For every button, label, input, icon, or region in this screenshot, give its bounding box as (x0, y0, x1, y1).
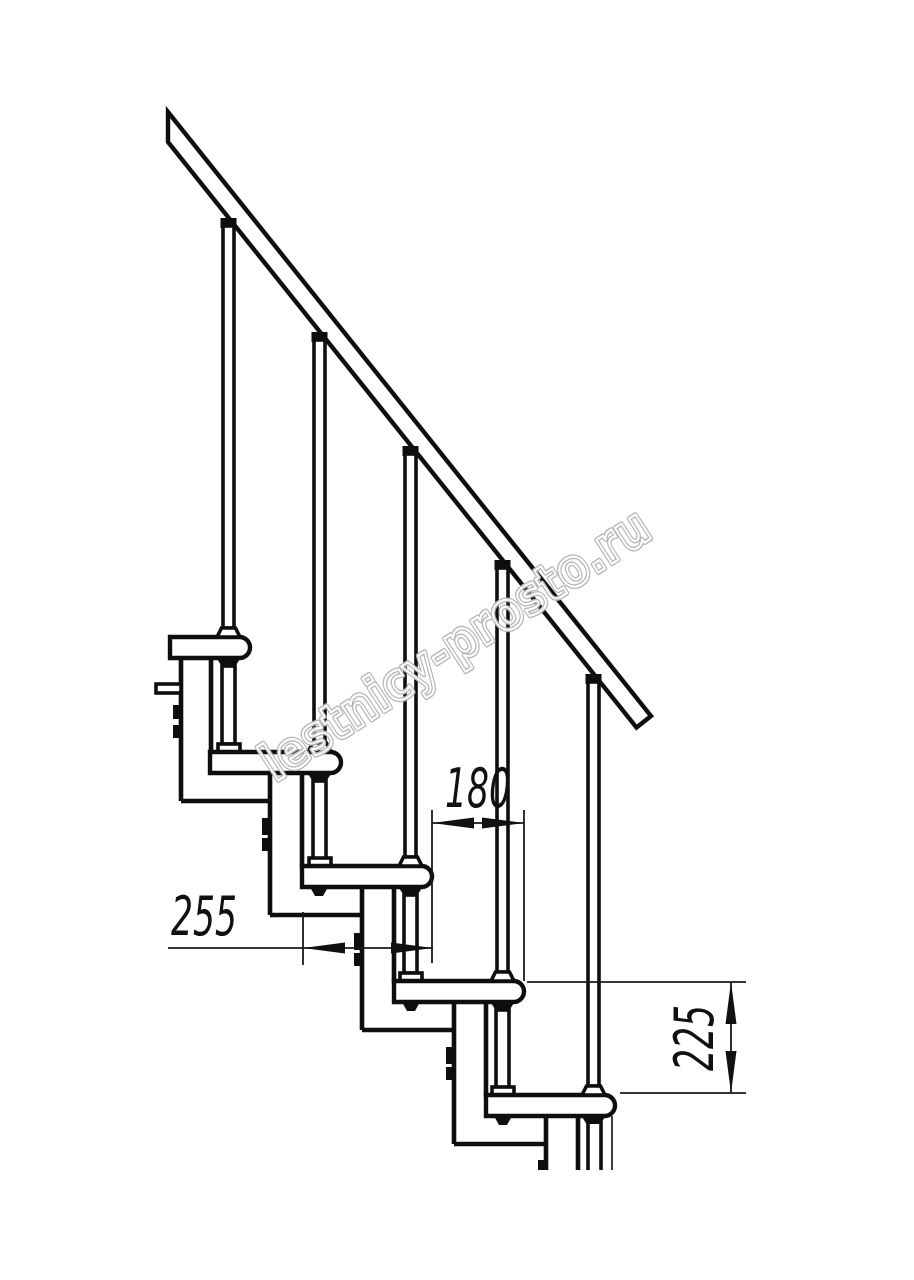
baluster-5 (582, 674, 605, 1095)
dim-step-rise-label: 225 (663, 1005, 726, 1071)
module-bolt (262, 818, 270, 835)
tread-4 (394, 981, 524, 1002)
tread-1 (170, 637, 250, 658)
dimension-step-rise: 225 (527, 982, 746, 1093)
arrowhead-up (726, 982, 737, 1024)
baluster-nut (399, 887, 423, 895)
module-joint-bolt (310, 887, 328, 896)
module-bolt (538, 1160, 546, 1170)
through-rod-1 (222, 666, 235, 744)
arrowhead-down (726, 1051, 737, 1093)
baluster-1 (217, 218, 240, 637)
support-module-5-cut (538, 1116, 578, 1170)
support-module-1 (156, 658, 270, 801)
module-bolt (446, 1067, 454, 1080)
module-side-tab (156, 684, 181, 693)
module-joint-bolt (402, 1002, 420, 1011)
baluster-base (491, 972, 514, 981)
tread-5 (486, 1095, 615, 1116)
baluster-nut (491, 1002, 515, 1010)
staircase-technical-drawing: 180 255 225 lestnicy-prosto.ru lestnicy-… (0, 0, 914, 1280)
baluster-base (582, 1086, 605, 1095)
through-rod-4 (496, 1010, 509, 1088)
staircase-drawing-page: 180 255 225 lestnicy-prosto.ru lestnicy-… (0, 0, 914, 1280)
dim-tread-depth-label: 255 (171, 885, 237, 948)
baluster-base (217, 628, 240, 637)
through-rod-2 (313, 781, 326, 859)
module-joint-bolt (494, 1116, 512, 1125)
module-bolt (262, 838, 270, 851)
through-rod-3 (404, 895, 417, 973)
baluster-2 (308, 332, 331, 752)
dimension-step-run: 180 (432, 757, 524, 981)
baluster-base (399, 857, 422, 866)
module-bolt (173, 705, 181, 719)
tread-3 (302, 866, 432, 887)
module-bolt (173, 725, 181, 738)
arrowhead-left (303, 943, 345, 954)
module-bolt (354, 953, 362, 966)
baluster-nut (217, 658, 241, 666)
module-bolt (446, 1047, 454, 1064)
dim-step-run-label: 180 (445, 757, 511, 820)
